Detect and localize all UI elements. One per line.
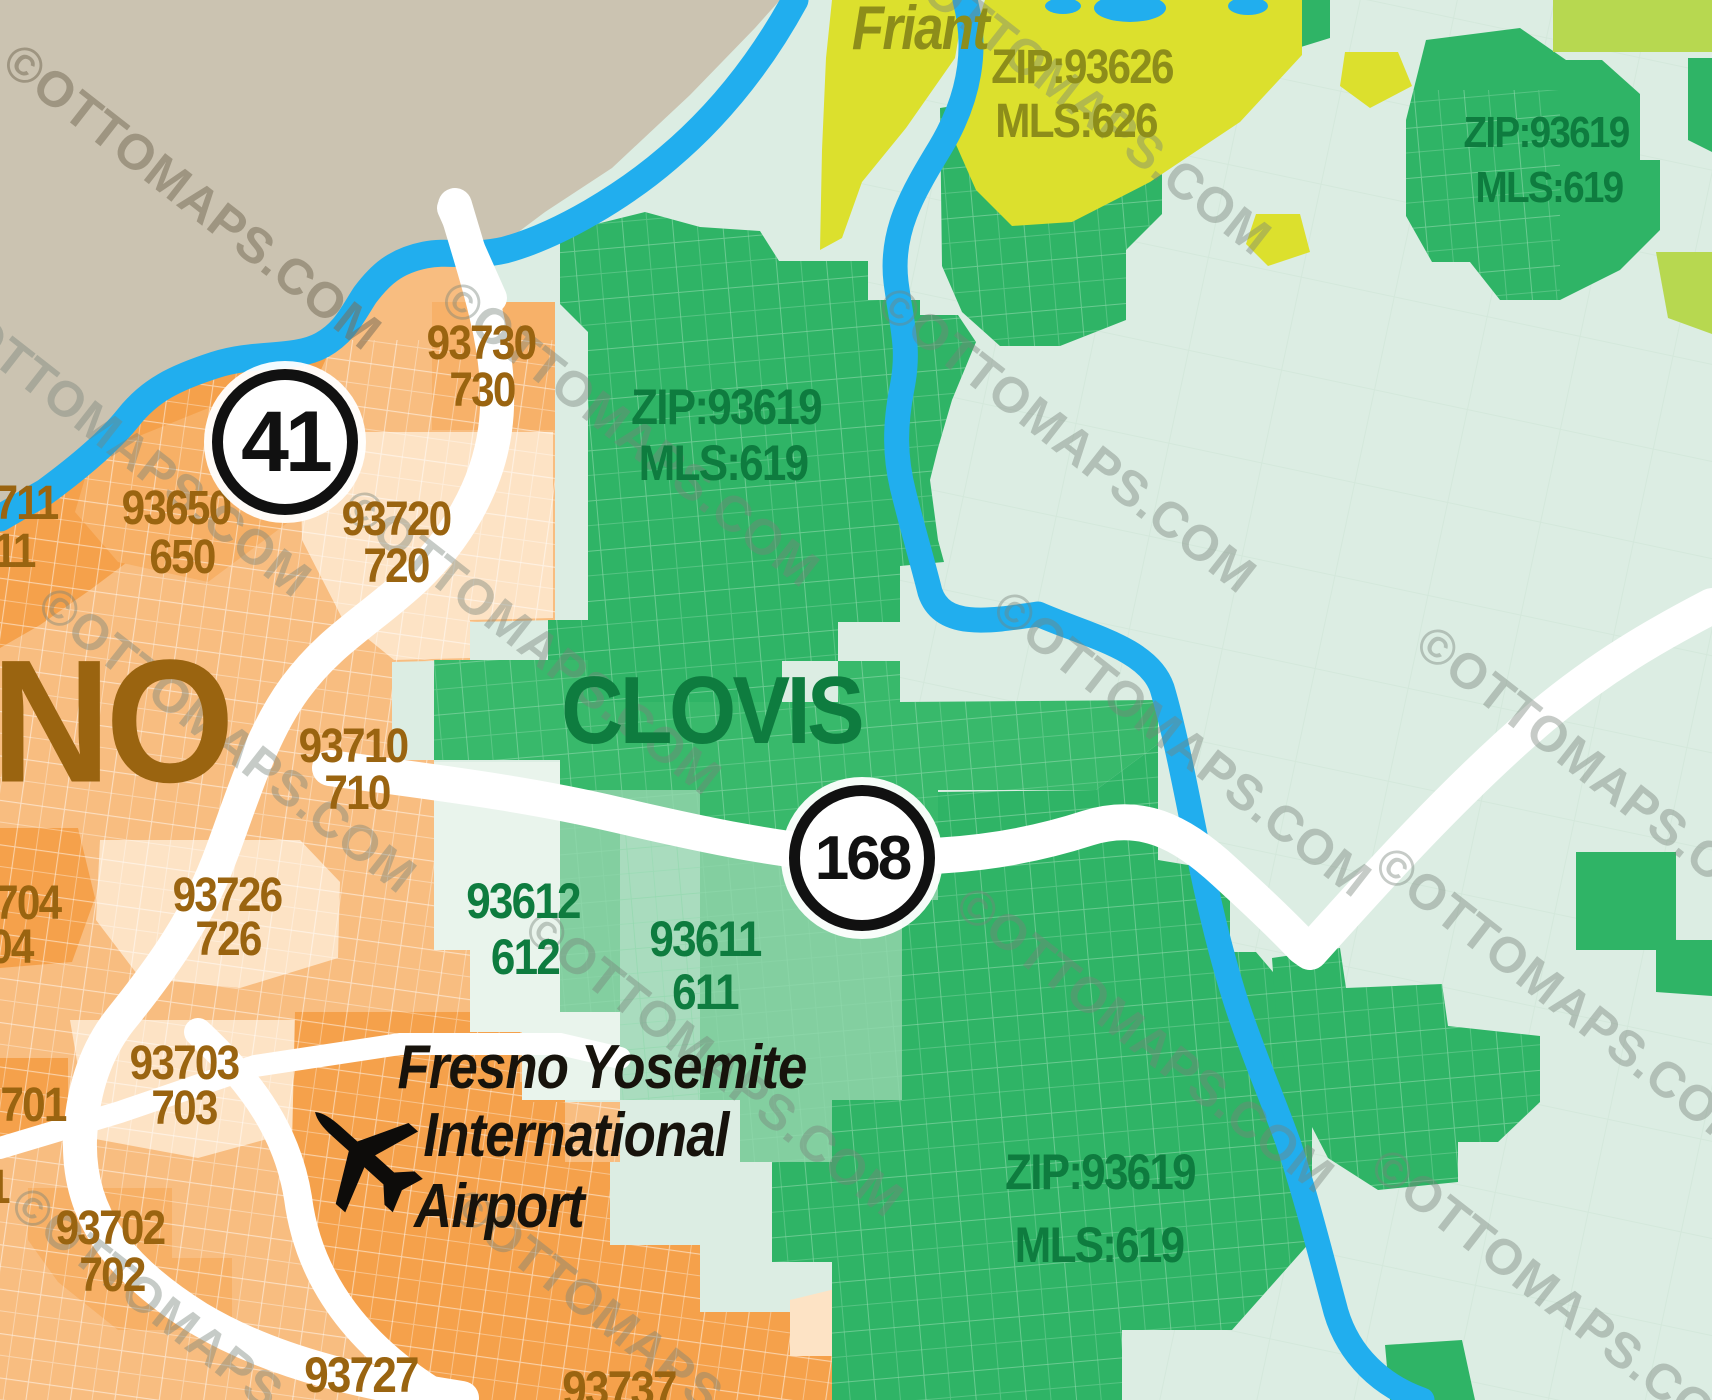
green-patch-right-edge — [1688, 58, 1712, 152]
highway-168-shield: 168 — [789, 785, 935, 931]
zip-code-map: ©OTTOMAPS.COM ©OTTOMAPS.COM ©OTTOMAPS.CO… — [0, 0, 1712, 1400]
map-canvas — [0, 0, 1712, 1400]
highway-41-shield-number: 41 — [241, 393, 329, 492]
green-patch-right-mid — [1576, 852, 1676, 950]
highway-41-shield: 41 — [212, 369, 358, 515]
yellow-green-patch-top-right — [1553, 0, 1712, 52]
highway-168-shield-number: 168 — [815, 823, 909, 894]
